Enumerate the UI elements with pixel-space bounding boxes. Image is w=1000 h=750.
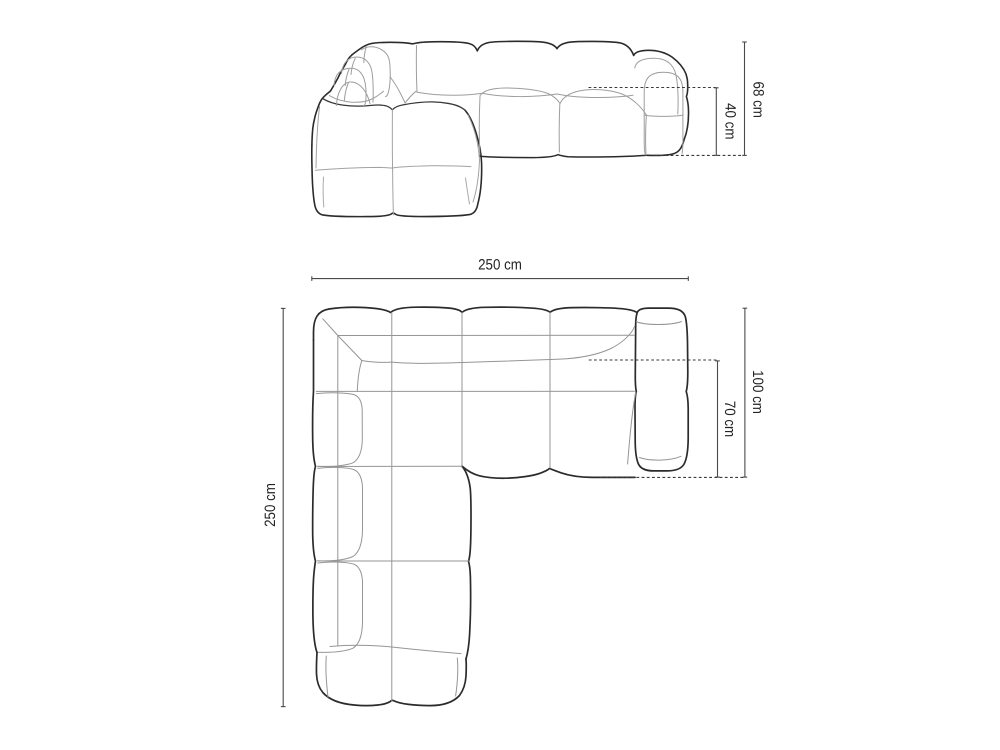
svg-text:250 cm: 250 cm [478,256,522,273]
svg-text:70 cm: 70 cm [721,401,738,437]
svg-text:68 cm: 68 cm [749,82,766,118]
svg-text:40 cm: 40 cm [722,103,739,139]
svg-text:100 cm: 100 cm [749,370,766,414]
svg-text:250 cm: 250 cm [262,483,279,527]
